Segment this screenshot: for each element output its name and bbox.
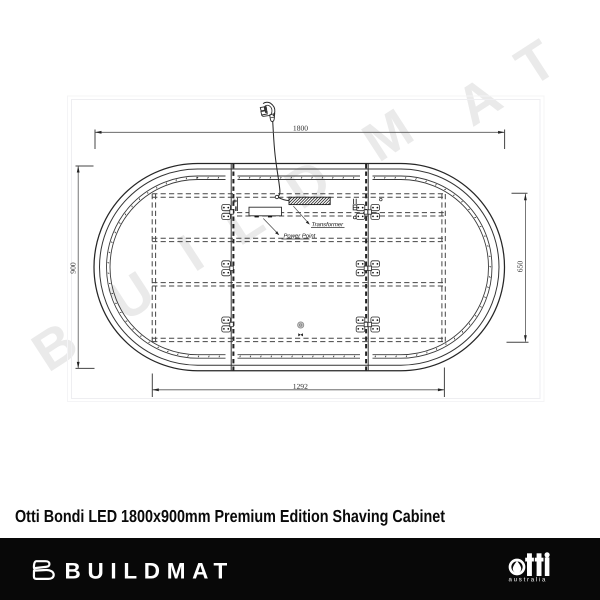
svg-text:Transformer: Transformer [311,221,344,228]
svg-text:australia: australia [508,576,547,583]
svg-text:I: I [167,223,214,283]
svg-text:1800: 1800 [293,124,308,133]
svg-text:Otti Bondi LED 1800x900mm Prem: Otti Bondi LED 1800x900mm Premium Editio… [15,506,445,526]
svg-text:T: T [505,28,567,98]
svg-text:M: M [351,96,423,173]
svg-text:900: 900 [69,262,78,274]
svg-text:1292: 1292 [293,382,308,391]
svg-text:Power Point: Power Point [283,233,315,240]
svg-text:650: 650 [516,261,525,273]
svg-text:BUILDMAT: BUILDMAT [65,559,234,584]
svg-text:U: U [98,259,165,333]
svg-text:A: A [445,64,512,138]
svg-text:D: D [274,147,341,221]
